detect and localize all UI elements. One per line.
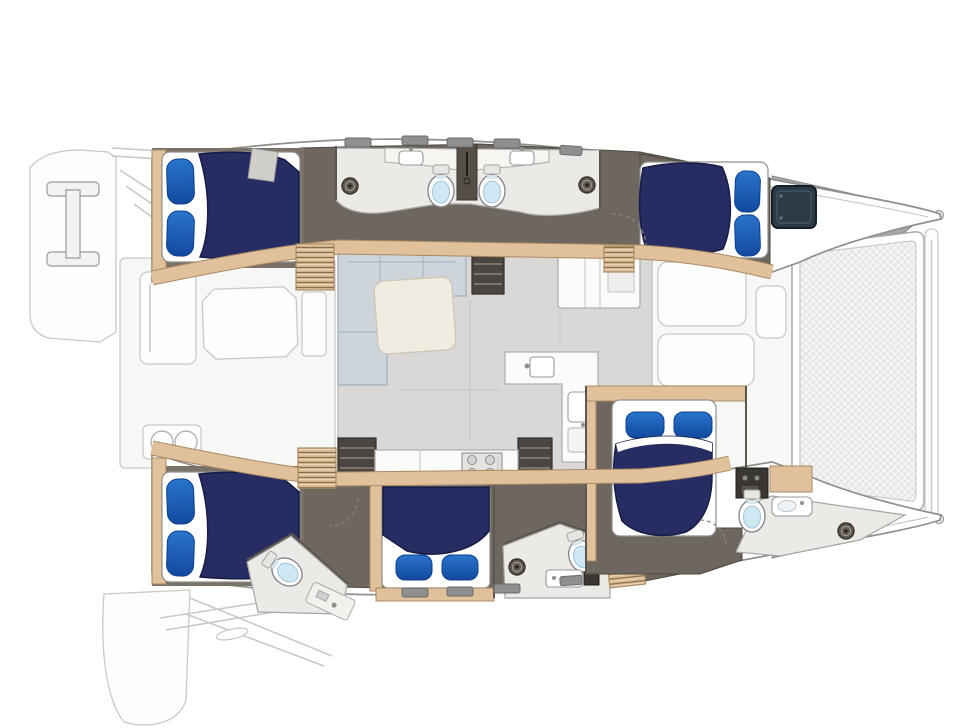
bed-pillow xyxy=(734,171,760,213)
burner xyxy=(486,456,495,465)
foredeck-lounge-pad xyxy=(658,334,754,386)
bed-pillow xyxy=(626,412,664,438)
bed-pillow xyxy=(166,531,195,577)
vanity-sink xyxy=(399,151,423,165)
cabin-wood-strip xyxy=(370,483,382,591)
faucet xyxy=(409,147,413,151)
shower-drain xyxy=(838,523,854,539)
trampoline-net xyxy=(800,241,916,501)
faucet xyxy=(581,423,585,427)
transom-step-line xyxy=(186,614,324,666)
faucet xyxy=(520,147,524,151)
cockpit-bench xyxy=(140,272,196,364)
cockpit-table xyxy=(202,286,298,359)
faucet xyxy=(525,364,530,369)
deck-hatch xyxy=(447,138,473,147)
catamaran-floor-plan xyxy=(0,0,971,728)
louvered-steps xyxy=(296,244,334,290)
foredeck-lounge-pad xyxy=(756,286,786,338)
burner xyxy=(468,456,477,465)
deck-hatch xyxy=(494,139,520,148)
shower-head xyxy=(464,178,470,184)
hatch-hinge xyxy=(779,216,783,220)
bed-duvet xyxy=(640,163,731,254)
bed-pillow xyxy=(734,215,760,257)
bed-pillow xyxy=(166,479,195,525)
louvered-steps xyxy=(298,448,336,488)
bed-pillow xyxy=(166,211,195,257)
cabinet-knob xyxy=(755,476,760,481)
head-shelf xyxy=(770,466,812,492)
bed-pillow xyxy=(442,555,478,580)
shower-drain xyxy=(342,178,358,194)
foredeck-lounge-pad xyxy=(658,262,746,326)
bed-duvet xyxy=(383,487,489,554)
bed-pillow xyxy=(396,555,432,580)
stern-fitting xyxy=(215,626,248,642)
deck-hatch-window xyxy=(772,186,816,228)
shower-drain xyxy=(509,559,525,575)
bow-trampoline xyxy=(792,211,944,524)
cockpit-side-seat xyxy=(302,292,326,356)
cabin-wood-header xyxy=(586,386,746,401)
bed-duvet xyxy=(614,436,712,535)
deck-hatch xyxy=(560,575,583,586)
floor-plan-canvas xyxy=(0,0,971,728)
deck-hatch xyxy=(494,584,520,593)
deck-hatch xyxy=(447,587,473,596)
louvered-steps xyxy=(604,246,634,272)
deck-hatch xyxy=(345,138,371,147)
sink-bowl xyxy=(778,501,796,512)
cabinet-knob xyxy=(743,476,748,481)
deck-hatch xyxy=(402,588,428,597)
shower-drain xyxy=(579,177,595,193)
galley-sink xyxy=(530,357,554,377)
hatch-hinge xyxy=(779,194,783,198)
vanity-sink xyxy=(510,151,534,165)
deck-hatch xyxy=(402,136,428,145)
swim-platform-bottom xyxy=(103,590,190,725)
shower-column xyxy=(457,144,477,200)
faucet xyxy=(800,501,804,505)
cabin-wood-strip xyxy=(376,588,494,601)
faucet xyxy=(552,576,556,580)
cleat-post xyxy=(66,190,80,258)
coffee-table xyxy=(374,276,457,354)
bottom-mid-cabin xyxy=(370,483,494,601)
bed-pillow xyxy=(166,159,195,205)
deck-hatch xyxy=(560,145,583,156)
bed-pillow xyxy=(674,412,712,438)
locker-door xyxy=(248,148,278,181)
